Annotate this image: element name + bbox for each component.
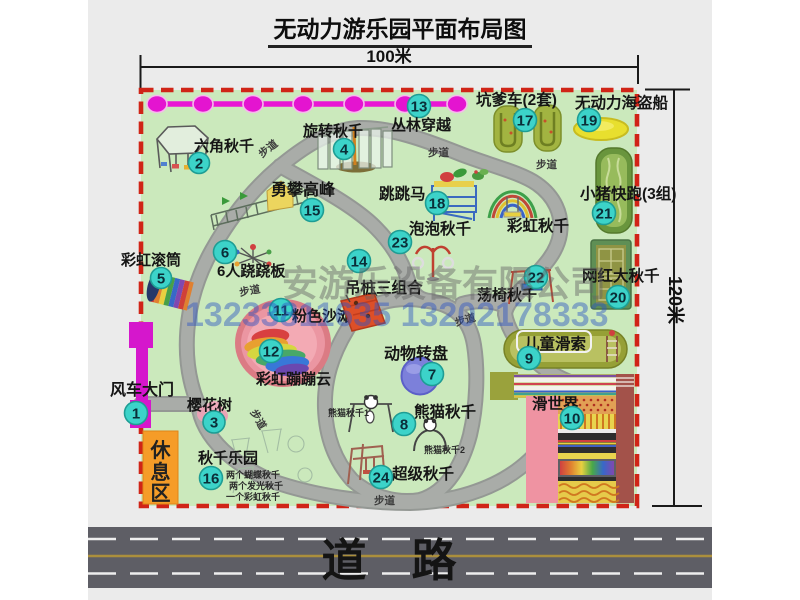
svg-text:20: 20: [610, 290, 627, 307]
svg-text:13: 13: [411, 99, 428, 116]
svg-text:21: 21: [596, 206, 613, 223]
svg-text:19: 19: [581, 113, 598, 130]
svg-text:步道: 步道: [428, 146, 449, 159]
svg-text:8: 8: [400, 417, 408, 434]
svg-text:4: 4: [340, 142, 349, 159]
svg-text:路: 路: [411, 535, 457, 586]
svg-text:100米: 100米: [366, 46, 412, 66]
svg-text:23: 23: [392, 235, 409, 252]
svg-text:坑爹车(2套): 坑爹车(2套): [476, 90, 557, 109]
svg-text:13233811635 13202178333: 13233811635 13202178333: [185, 296, 609, 334]
svg-text:熊猫秋千: 熊猫秋千: [414, 402, 477, 421]
svg-text:10: 10: [564, 411, 581, 428]
svg-text:跳跳马: 跳跳马: [379, 184, 426, 203]
svg-text:一个彩虹秋千: 一个彩虹秋千: [226, 491, 280, 502]
svg-text:9: 9: [525, 351, 533, 368]
svg-text:6人跷跷板: 6人跷跷板: [217, 262, 286, 280]
svg-text:步道: 步道: [536, 158, 557, 171]
svg-text:道: 道: [321, 535, 366, 586]
svg-text:风车大门: 风车大门: [110, 380, 174, 399]
svg-text:12: 12: [263, 344, 280, 361]
svg-text:两个蝴蝶秋千: 两个蝴蝶秋千: [226, 469, 280, 480]
svg-text:息: 息: [151, 460, 171, 484]
svg-text:16: 16: [203, 471, 220, 488]
svg-text:秋千乐园: 秋千乐园: [198, 449, 258, 467]
svg-text:17: 17: [517, 113, 534, 130]
svg-text:彩虹蹦蹦云: 彩虹蹦蹦云: [255, 370, 331, 388]
svg-text:24: 24: [373, 470, 390, 487]
svg-text:3: 3: [210, 415, 218, 432]
svg-text:2: 2: [195, 156, 203, 173]
svg-text:15: 15: [304, 203, 321, 220]
svg-text:区: 区: [151, 483, 171, 505]
svg-text:熊猫秋千1: 熊猫秋千1: [328, 407, 369, 418]
svg-text:旋转秋千: 旋转秋千: [302, 122, 363, 140]
svg-text:18: 18: [429, 196, 446, 213]
svg-text:超级秋千: 超级秋千: [391, 464, 455, 483]
svg-text:六角秋千: 六角秋千: [194, 137, 254, 155]
svg-text:步道: 步道: [374, 494, 395, 507]
svg-text:休: 休: [150, 438, 172, 462]
svg-text:7: 7: [428, 367, 436, 384]
svg-text:彩虹滚筒: 彩虹滚筒: [120, 251, 181, 269]
svg-text:小猪快跑(3组): 小猪快跑(3组): [580, 184, 676, 203]
svg-text:熊猫秋千2: 熊猫秋千2: [424, 444, 465, 455]
svg-text:1: 1: [132, 406, 140, 423]
svg-text:两个发光秋千: 两个发光秋千: [229, 480, 283, 491]
svg-text:勇攀高峰: 勇攀高峰: [271, 180, 336, 199]
svg-text:5: 5: [157, 271, 165, 288]
svg-text:彩虹秋千: 彩虹秋千: [506, 216, 570, 235]
svg-text:120米: 120米: [665, 276, 686, 325]
svg-text:动物转盘: 动物转盘: [384, 344, 448, 363]
svg-text:无动力游乐园平面布局图: 无动力游乐园平面布局图: [274, 16, 527, 42]
svg-text:6: 6: [221, 245, 229, 262]
svg-text:丛林穿越: 丛林穿越: [391, 116, 452, 134]
svg-text:泡泡秋千: 泡泡秋千: [409, 219, 472, 238]
